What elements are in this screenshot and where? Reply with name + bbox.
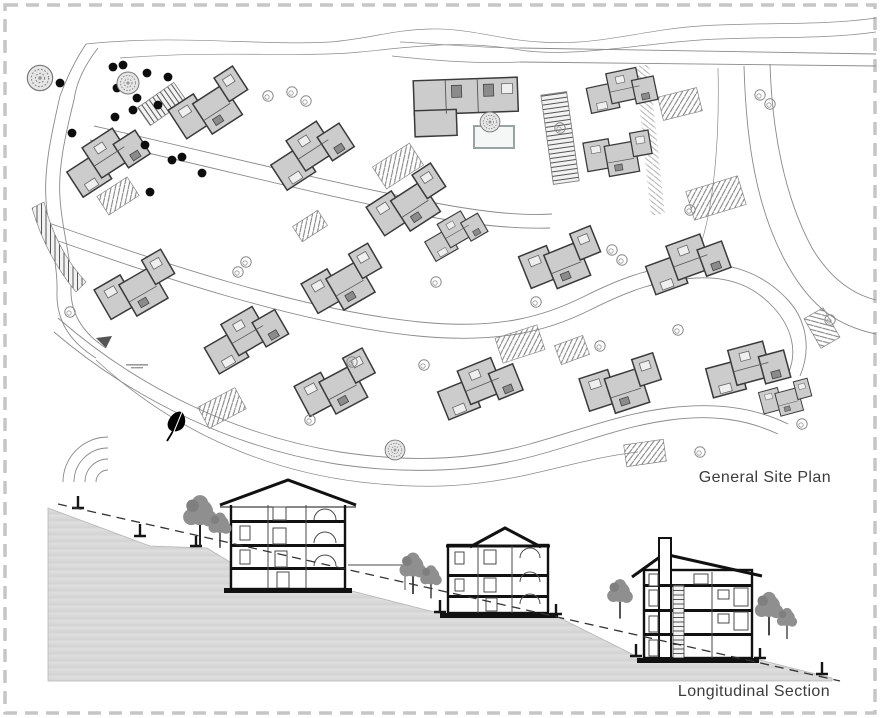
roundabout-icon <box>385 440 405 460</box>
building-cluster <box>264 111 354 190</box>
building-cluster <box>758 378 815 420</box>
site-plan-drawing <box>27 18 876 486</box>
site-plan-label: General Site Plan <box>699 469 831 487</box>
building-cluster <box>642 228 732 295</box>
section-building-2 <box>440 528 558 618</box>
building-cluster <box>198 297 288 373</box>
stair-icon <box>541 92 579 185</box>
building-cluster <box>583 130 655 180</box>
architectural-sheet: General Site Plan Longitudinal Section <box>0 0 880 718</box>
longitudinal-section-drawing <box>48 480 840 681</box>
drawing-svg <box>0 0 880 718</box>
section-building-3 <box>632 538 762 663</box>
section-label: Longitudinal Section <box>678 683 830 701</box>
curved-stair-icon <box>63 437 108 482</box>
building-cluster <box>93 249 184 328</box>
retaining-wall-hatch <box>32 202 86 292</box>
buildings-layer <box>60 64 815 425</box>
building-cluster <box>293 348 383 425</box>
section-building-1 <box>220 480 405 593</box>
building-cluster <box>518 226 608 298</box>
plan-note-mark <box>126 364 148 368</box>
circular-plaza-icon <box>480 112 500 132</box>
circular-plaza-icon <box>117 72 139 94</box>
circular-plaza-icon <box>27 65 52 90</box>
building-cluster <box>167 66 257 147</box>
